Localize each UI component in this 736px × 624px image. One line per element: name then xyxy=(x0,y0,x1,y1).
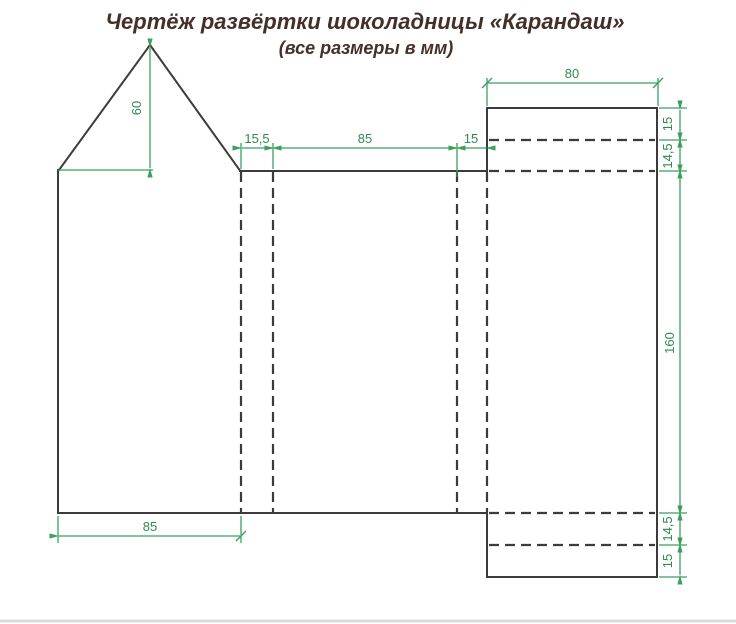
dimension-labels: 60 15,5 85 15 80 15 14,5 160 14,5 15 85 xyxy=(129,66,677,568)
dim-label-top-glue: 15 xyxy=(464,131,478,146)
dim-label-right-lip-top: 15 xyxy=(660,117,675,131)
drawing-title: Чертёж развёртки шоколадницы «Карандаш» xyxy=(105,9,624,34)
dim-label-right-fold-bottom: 14,5 xyxy=(660,516,675,541)
dim-label-roof-height: 60 xyxy=(129,101,144,115)
dim-label-lid-width: 80 xyxy=(565,66,579,81)
dim-label-top-panel: 85 xyxy=(358,131,372,146)
dim-label-right-lip-bottom: 15 xyxy=(660,554,675,568)
drawing-subtitle: (все размеры в мм) xyxy=(279,38,454,58)
roof-right-slope-line xyxy=(150,45,241,172)
dimension-graphics xyxy=(58,48,687,577)
cut-outline xyxy=(58,45,657,577)
dim-label-right-fold-top: 14,5 xyxy=(660,143,675,168)
dim-label-side-height: 160 xyxy=(662,332,677,354)
fold-lines xyxy=(241,140,655,545)
dim-label-top-flap: 15,5 xyxy=(244,131,269,146)
chocolate-box-development-drawing: Чертёж развёртки шоколадницы «Карандаш» … xyxy=(0,0,736,624)
dim-label-bottom-panel: 85 xyxy=(143,519,157,534)
drawing-canvas: Чертёж развёртки шоколадницы «Карандаш» … xyxy=(0,0,736,624)
